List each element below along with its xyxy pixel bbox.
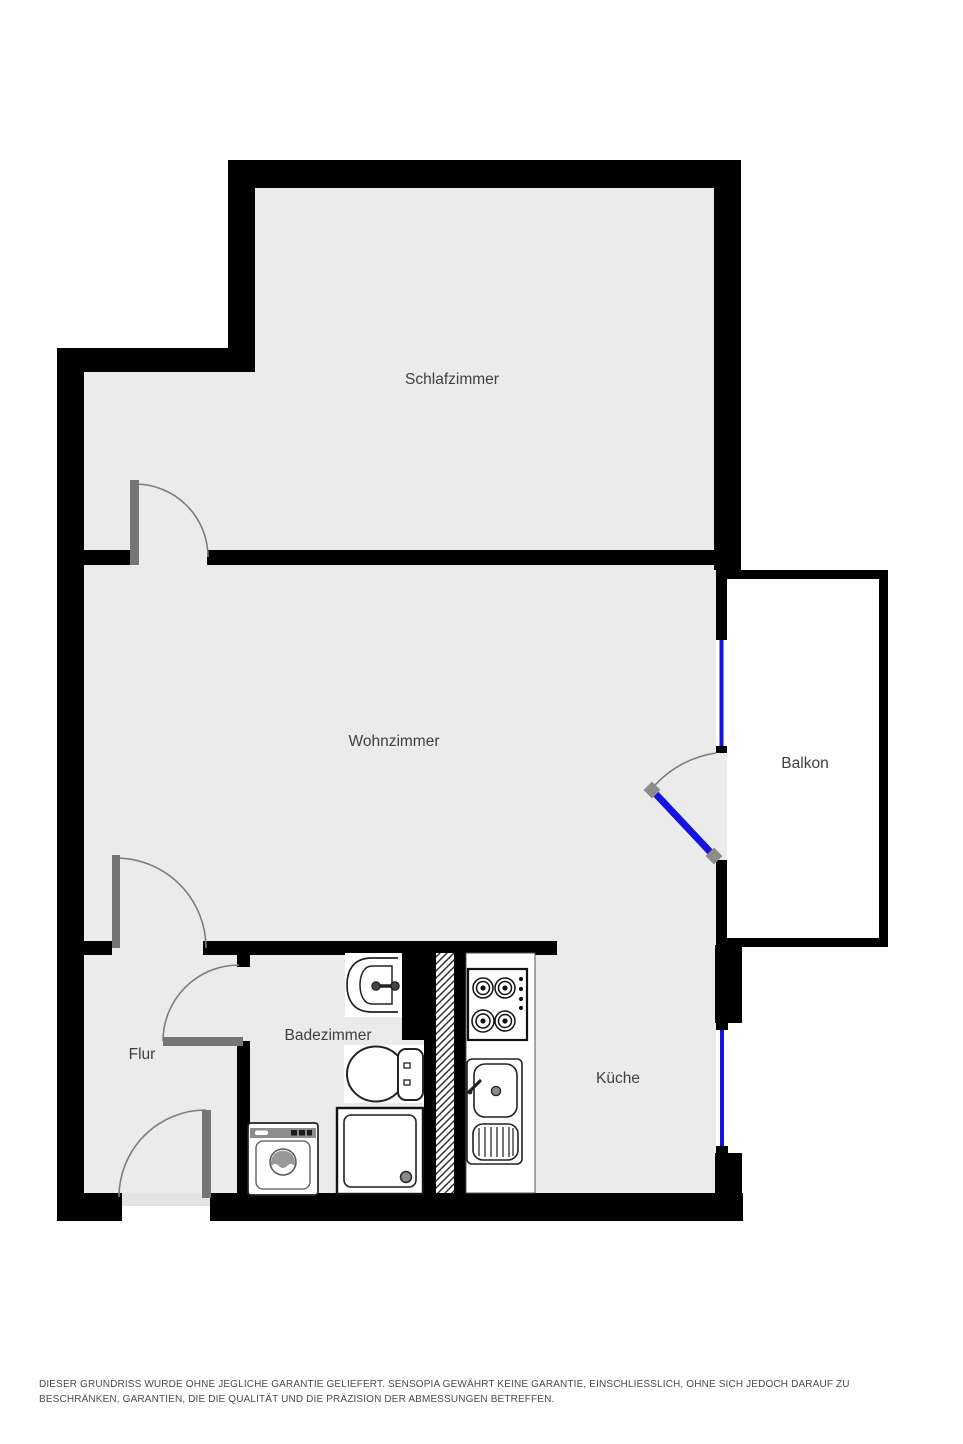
- balcony-doorway-floor: [714, 753, 727, 860]
- wall-wohn-south-left: [84, 941, 112, 955]
- disclaimer-text: DIESER GRUNDRISS WURDE OHNE JEGLICHE GAR…: [39, 1378, 931, 1407]
- door-badezimmer-leaf: [163, 1037, 243, 1046]
- wall-south-right: [210, 1193, 743, 1221]
- washbasin: [345, 953, 402, 1017]
- wall-kitchen-east-upper: [715, 945, 742, 1023]
- wall-east-schlafzimmer: [714, 160, 741, 570]
- wall-south-left: [57, 1193, 122, 1221]
- balcony-window: [716, 633, 727, 753]
- room-label-flur: Flur: [129, 1046, 156, 1063]
- floorplan-drawing: Schlafzimmer Wohnzimmer Balkon Flur Bade…: [0, 0, 963, 1444]
- ventilation-shaft: [436, 953, 454, 1193]
- kitchen-window: [716, 1023, 728, 1153]
- wall-west-upper: [228, 160, 255, 372]
- wall-shaft-right: [454, 953, 466, 1193]
- wall-schlaf-wohn-left: [84, 550, 131, 565]
- toilet: [344, 1045, 424, 1103]
- wall-shaft-left: [424, 953, 436, 1193]
- entrance-threshold: [122, 1193, 210, 1206]
- room-label-wohnzimmer: Wohnzimmer: [348, 733, 439, 750]
- wall-west: [57, 348, 84, 1221]
- room-label-schlafzimmer: Schlafzimmer: [405, 371, 499, 388]
- wall-balcony-side-lower: [716, 860, 727, 947]
- stove: [468, 969, 527, 1040]
- wall-north: [228, 160, 741, 188]
- wall-balcony-side-upper: [716, 565, 727, 633]
- wall-schlaf-wohn-right: [207, 550, 714, 565]
- wall-kitchen-east-lower: [715, 1153, 742, 1221]
- door-wohnzimmer-flur-leaf: [112, 855, 120, 948]
- shower: [337, 1108, 423, 1194]
- room-label-badezimmer: Badezimmer: [285, 1027, 372, 1044]
- door-entrance-leaf: [202, 1110, 211, 1198]
- door-schlafzimmer-leaf: [130, 480, 139, 565]
- floorplan-page: Schlafzimmer Wohnzimmer Balkon Flur Bade…: [0, 0, 963, 1444]
- room-label-balkon: Balkon: [781, 755, 828, 772]
- wall-notch: [57, 348, 255, 372]
- room-label-kueche: Küche: [596, 1070, 640, 1087]
- kitchen-sink: [467, 1059, 522, 1164]
- washing-machine: [248, 1123, 318, 1195]
